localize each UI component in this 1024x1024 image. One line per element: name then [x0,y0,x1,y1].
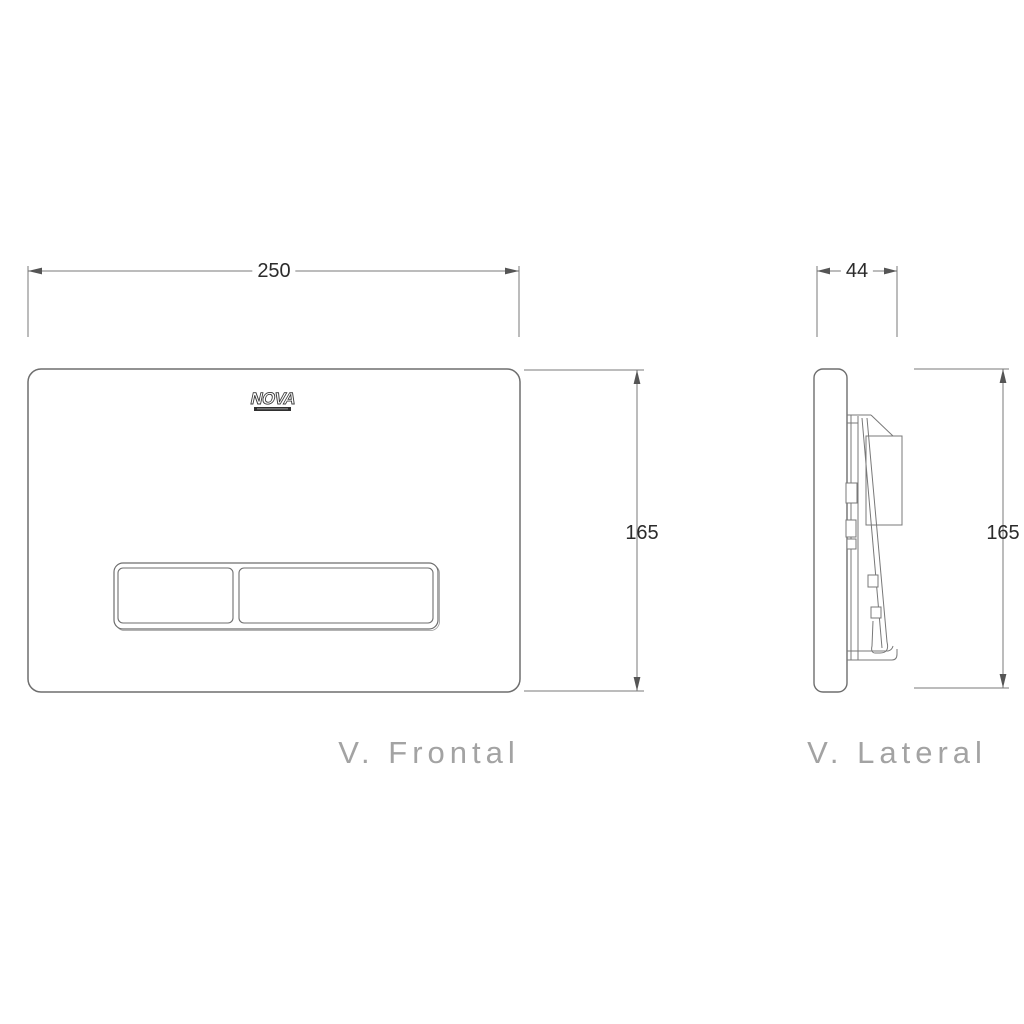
frontal-width-dimension-value: 250 [252,261,295,281]
right-flush-button [239,568,433,623]
brand-logo: NOVA [249,389,298,411]
logo-tagline-bar-text-hint [257,408,288,409]
left-flush-button [118,568,233,623]
technical-drawing-canvas: NOVA [0,0,1024,1024]
mechanism-mount-box [866,436,902,525]
lateral-mechanism [846,415,902,660]
flush-buttons [114,563,440,631]
lateral-height-dimension-value: 165 [986,523,1019,543]
brand-logo-text: NOVA [249,389,298,408]
frontal-view-caption: V. Frontal [338,737,520,768]
lateral-depth-dimension-value: 44 [841,261,873,281]
frontal-height-dimension-value: 165 [625,523,658,543]
drawing-linework: NOVA [0,0,1024,1024]
frontal-plate-outline [28,369,520,692]
lateral-view-caption: V. Lateral [807,737,987,768]
lateral-plate-profile [814,369,847,692]
